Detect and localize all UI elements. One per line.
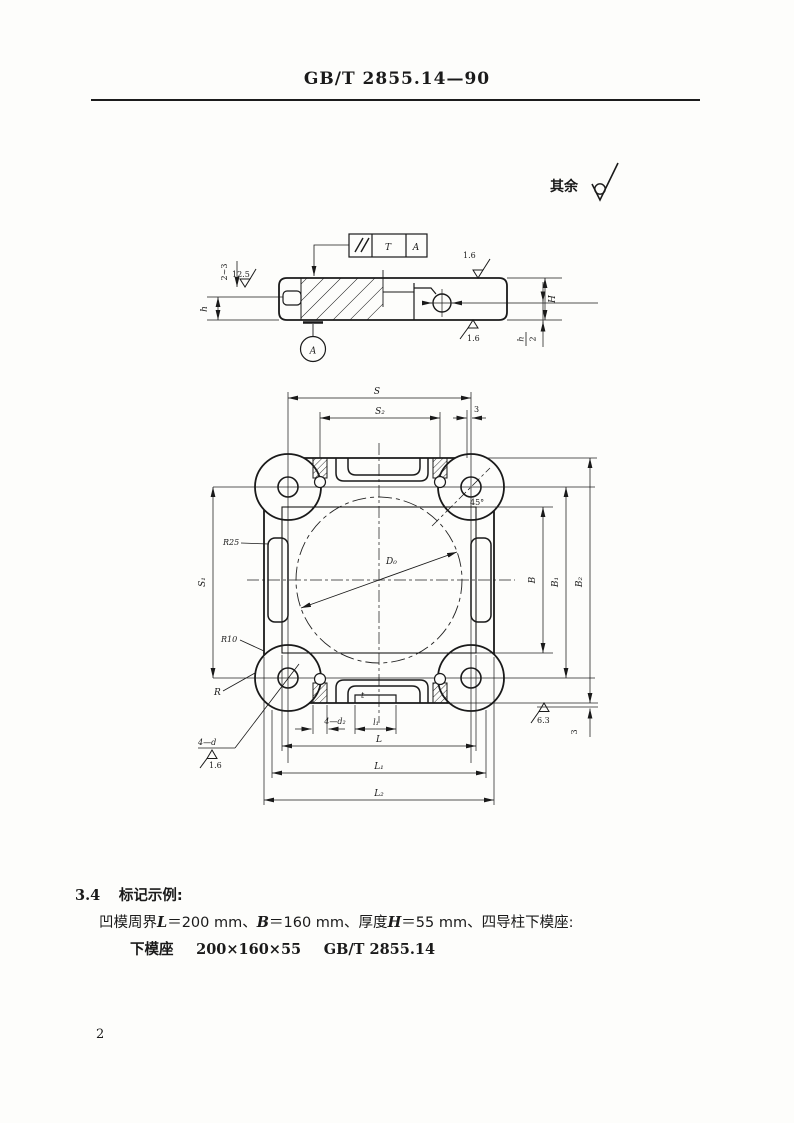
D0-label: D₀ (385, 557, 397, 567)
roughness-4d-label: 1.6 (209, 761, 222, 770)
roughness-12-5: 12.5 (232, 269, 256, 287)
h-half-label: h 2 (517, 332, 538, 346)
L1-label: L₁ (373, 762, 384, 772)
parallelism-tolerance-frame: T A (314, 234, 427, 276)
three-right-label: 3 (570, 729, 579, 734)
B2-label: B₂ (575, 577, 585, 589)
h-label: h (200, 306, 210, 312)
guide-post-holes (278, 477, 481, 688)
clamp-slots (336, 458, 428, 703)
S2-label: S₂ (375, 407, 385, 417)
standard-document-page: GB/T 2855.14—90 其余 (0, 0, 794, 1123)
roughness-12-5-label: 12.5 (232, 270, 250, 279)
fcf-tolerance-label: T (385, 243, 392, 253)
roughness-bottom-label: 1.6 (467, 334, 480, 343)
dimension-h (207, 297, 283, 320)
marking-section-number: 3.4 (75, 887, 100, 904)
marking-spec-line: 凹模周界L＝200 mm、B＝160 mm、厚度H＝55 mm、四导柱下模座: (99, 911, 573, 932)
marking-section-title: 标记示例: (119, 888, 183, 904)
datum-a-flag: A (301, 323, 326, 362)
section-hatch (301, 278, 383, 320)
svg-text:2: 2 (529, 336, 538, 341)
R25-label: R25 (222, 538, 239, 547)
svg-text:h: h (517, 336, 526, 341)
surface-roughness-all-icon (586, 160, 630, 210)
four-d-label: 4—d (197, 738, 216, 747)
fcf-datum-label: A (412, 243, 420, 253)
S-label: S (374, 387, 380, 397)
plan-view-drawing: D₀ 45° (185, 385, 605, 815)
screw-hole-section-detail (383, 283, 598, 320)
roughness-4d: 1.6 (200, 750, 222, 770)
header-divider (91, 99, 700, 101)
surface-note-label: 其余 (550, 176, 578, 196)
R10-label: R10 (220, 635, 237, 644)
page-title: GB/T 2855.14—90 (0, 69, 794, 89)
B1-label: B₁ (551, 577, 561, 588)
lip-range-label: 2~3 (220, 264, 229, 281)
four-d2-label: 4—d₂ (323, 717, 345, 726)
marking-designation-line: 下模座 200×160×55 GB/T 2855.14 (130, 938, 435, 959)
H-label: H (548, 295, 558, 304)
roughness-top-1-6: 1.6 (463, 251, 490, 278)
datum-a-label: A (309, 347, 317, 357)
roughness-6-3-label: 6.3 (537, 716, 550, 725)
center-extension-lines (213, 392, 598, 805)
roughness-6-3: 6.3 (531, 703, 550, 725)
parallelism-icon (355, 238, 369, 252)
page-number: 2 (96, 1027, 104, 1042)
section-view-drawing: T A A h 2~3 12.5 (190, 225, 610, 380)
screw-hole-notches (313, 458, 447, 703)
R-label: R (213, 688, 221, 698)
L-label: L (375, 735, 382, 745)
L2-label: L₂ (373, 789, 384, 799)
roughness-top-label: 1.6 (463, 251, 476, 260)
three-top-label: 3 (474, 405, 479, 414)
S1-label: S₁ (198, 577, 208, 587)
B-label: B (528, 576, 538, 584)
l1-label: l₁ (373, 718, 379, 727)
angle-45-label: 45° (470, 498, 484, 507)
roughness-bottom-1-6: 1.6 (460, 320, 480, 343)
